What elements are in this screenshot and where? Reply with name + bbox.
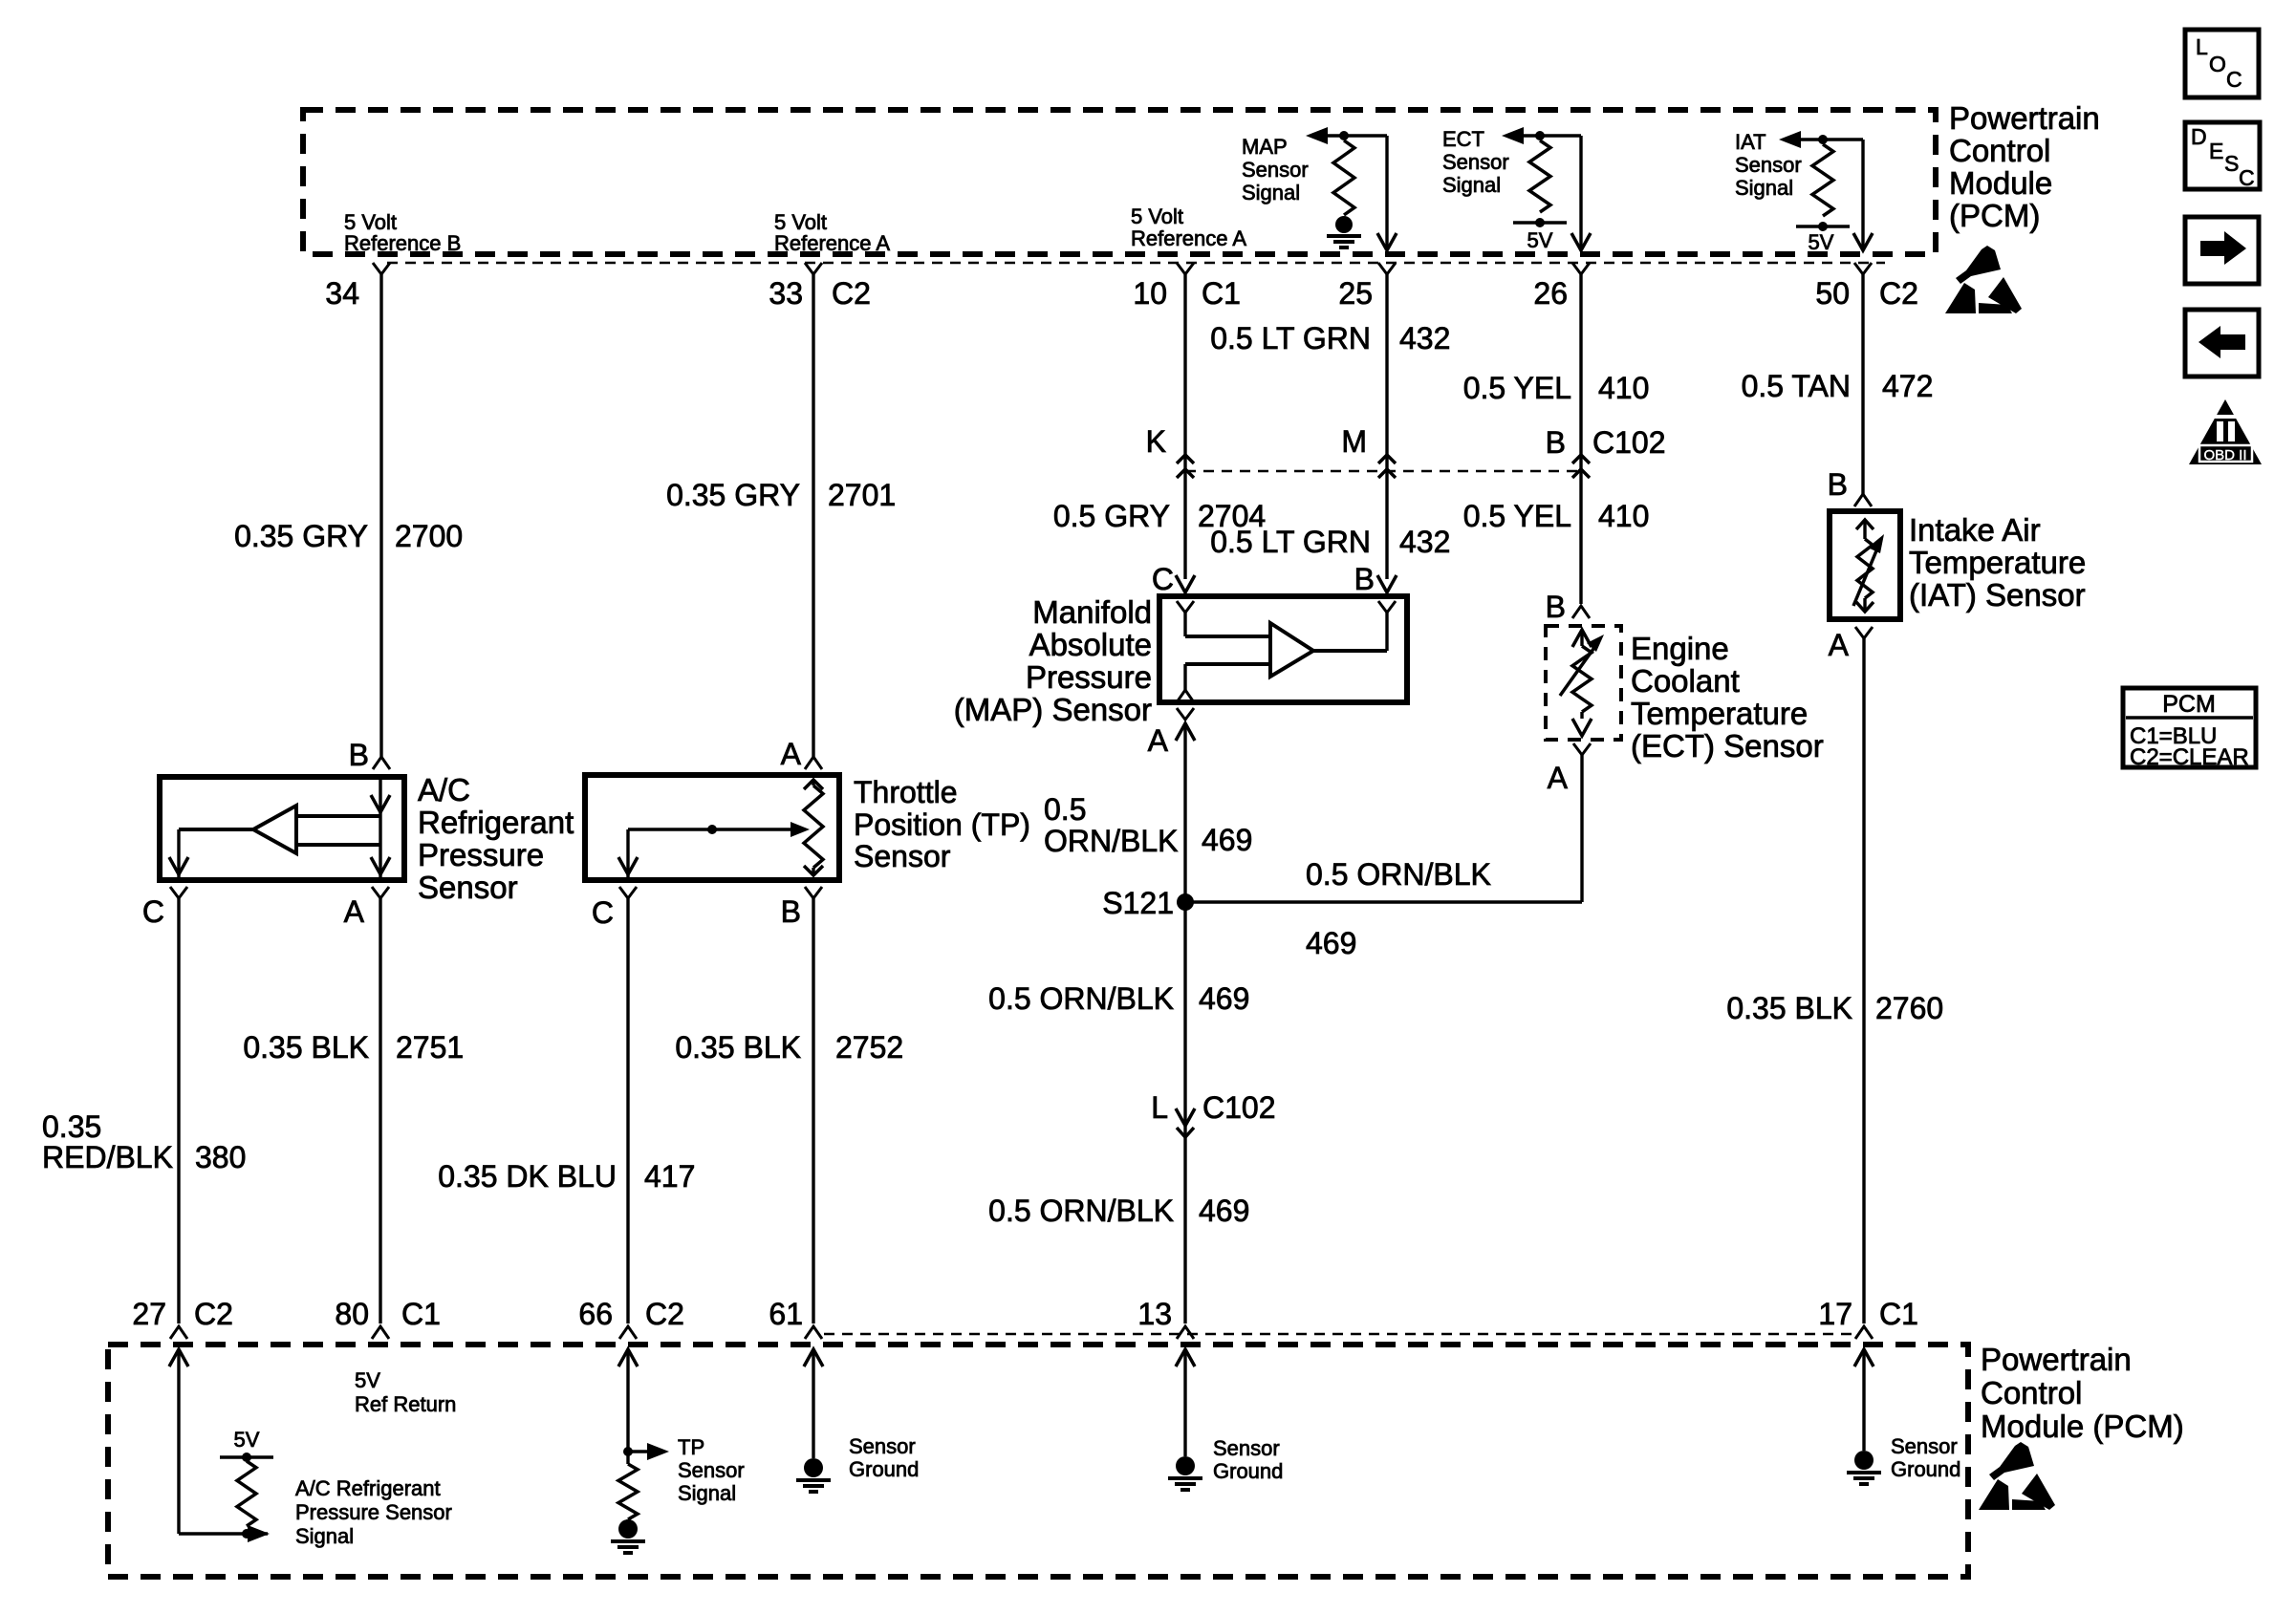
svg-text:Pressure: Pressure xyxy=(1026,659,1152,695)
svg-text:A/C Refrigerant: A/C Refrigerant xyxy=(295,1476,441,1500)
svg-text:5V: 5V xyxy=(355,1368,380,1392)
svg-text:66: 66 xyxy=(578,1297,613,1331)
svg-text:0.35 DK BLU: 0.35 DK BLU xyxy=(438,1159,617,1194)
svg-text:C: C xyxy=(142,894,164,929)
svg-text:C: C xyxy=(2226,67,2242,92)
svg-text:0.5 ORN/BLK: 0.5 ORN/BLK xyxy=(988,981,1174,1016)
svg-text:0.35 GRY: 0.35 GRY xyxy=(666,478,800,512)
svg-text:26: 26 xyxy=(1533,276,1568,311)
svg-text:0.35 BLK: 0.35 BLK xyxy=(243,1030,369,1065)
svg-text:0.5 ORN/BLK: 0.5 ORN/BLK xyxy=(988,1194,1174,1228)
svg-text:Intake Air: Intake Air xyxy=(1909,512,2041,548)
svg-text:2700: 2700 xyxy=(395,519,463,553)
svg-text:C: C xyxy=(592,895,614,930)
svg-text:432: 432 xyxy=(1399,525,1450,559)
svg-text:0.5 YEL: 0.5 YEL xyxy=(1463,371,1571,405)
svg-text:0.5 ORN/BLK: 0.5 ORN/BLK xyxy=(1306,857,1491,892)
svg-text:469: 469 xyxy=(1199,1194,1249,1228)
svg-text:MAP: MAP xyxy=(1242,135,1288,159)
svg-text:80: 80 xyxy=(335,1297,369,1331)
svg-text:IAT: IAT xyxy=(1735,130,1766,154)
svg-text:0.5 LT GRN: 0.5 LT GRN xyxy=(1210,321,1371,355)
svg-text:Signal: Signal xyxy=(295,1524,354,1548)
svg-text:Engine: Engine xyxy=(1631,631,1729,666)
svg-text:Coolant: Coolant xyxy=(1631,663,1740,699)
svg-text:Ground: Ground xyxy=(1213,1459,1283,1483)
svg-text:Reference B: Reference B xyxy=(344,231,461,255)
svg-text:2701: 2701 xyxy=(828,478,896,512)
svg-text:0.35 BLK: 0.35 BLK xyxy=(1726,991,1852,1025)
svg-text:Module: Module xyxy=(1949,165,2052,201)
svg-text:50: 50 xyxy=(1815,276,1850,311)
svg-text:A: A xyxy=(781,737,802,771)
svg-text:C102: C102 xyxy=(1592,425,1666,460)
svg-text:Control: Control xyxy=(1949,133,2050,168)
svg-text:Module (PCM): Module (PCM) xyxy=(1981,1409,2184,1444)
svg-text:Ground: Ground xyxy=(849,1457,919,1481)
svg-text:380: 380 xyxy=(195,1140,246,1174)
svg-text:Position (TP): Position (TP) xyxy=(854,807,1030,842)
svg-text:Reference A: Reference A xyxy=(1131,226,1246,250)
svg-text:Sensor: Sensor xyxy=(849,1434,916,1458)
svg-text:Temperature: Temperature xyxy=(1909,545,2086,580)
svg-text:Reference A: Reference A xyxy=(774,231,890,255)
svg-text:33: 33 xyxy=(769,276,803,311)
svg-text:Ref Return: Ref Return xyxy=(355,1392,456,1416)
svg-text:0.35: 0.35 xyxy=(42,1109,101,1144)
svg-text:C1: C1 xyxy=(401,1297,441,1331)
svg-text:Pressure: Pressure xyxy=(418,837,544,872)
svg-text:C: C xyxy=(2239,165,2255,190)
svg-text:Manifold: Manifold xyxy=(1032,594,1152,630)
svg-text:Signal: Signal xyxy=(1735,176,1793,200)
svg-text:B: B xyxy=(781,894,801,929)
svg-text:A: A xyxy=(1548,761,1569,795)
svg-text:5 Volt: 5 Volt xyxy=(1131,204,1183,228)
svg-text:5V: 5V xyxy=(1809,230,1834,254)
svg-text:13: 13 xyxy=(1137,1297,1172,1331)
svg-text:472: 472 xyxy=(1882,369,1933,403)
svg-text:17: 17 xyxy=(1818,1297,1852,1331)
svg-text:417: 417 xyxy=(644,1159,695,1194)
svg-text:B: B xyxy=(1546,425,1566,460)
svg-text:410: 410 xyxy=(1598,499,1649,533)
svg-text:C: C xyxy=(1152,562,1174,596)
svg-text:Sensor: Sensor xyxy=(1213,1436,1280,1460)
svg-text:25: 25 xyxy=(1338,276,1373,311)
svg-text:B: B xyxy=(349,738,369,772)
svg-text:C1: C1 xyxy=(1202,276,1241,311)
svg-text:Ground: Ground xyxy=(1891,1457,1960,1481)
svg-text:2751: 2751 xyxy=(396,1030,464,1065)
svg-text:C2: C2 xyxy=(1879,276,1918,311)
svg-text:0.35 GRY: 0.35 GRY xyxy=(234,519,368,553)
svg-text:A: A xyxy=(1148,723,1169,758)
svg-text:C1: C1 xyxy=(1879,1297,1918,1331)
svg-text:C102: C102 xyxy=(1202,1090,1276,1125)
svg-text:61: 61 xyxy=(769,1297,803,1331)
svg-text:(PCM): (PCM) xyxy=(1949,198,2040,233)
svg-text:27: 27 xyxy=(132,1297,166,1331)
svg-text:M: M xyxy=(1341,424,1367,459)
svg-text:RED/BLK: RED/BLK xyxy=(42,1140,173,1174)
svg-text:S121: S121 xyxy=(1102,886,1174,920)
svg-text:Pressure Sensor: Pressure Sensor xyxy=(295,1500,452,1524)
svg-text:S: S xyxy=(2224,151,2239,176)
svg-text:Signal: Signal xyxy=(1442,173,1501,197)
svg-text:C2: C2 xyxy=(832,276,871,311)
svg-text:L: L xyxy=(2196,34,2208,59)
svg-text:0.35 BLK: 0.35 BLK xyxy=(675,1030,801,1065)
svg-text:Sensor: Sensor xyxy=(678,1458,745,1482)
svg-text:B: B xyxy=(1828,467,1848,502)
svg-text:10: 10 xyxy=(1133,276,1167,311)
svg-text:469: 469 xyxy=(1306,926,1356,960)
svg-text:Control: Control xyxy=(1981,1375,2082,1410)
svg-text:TP: TP xyxy=(678,1435,704,1459)
svg-text:5V: 5V xyxy=(234,1428,260,1452)
svg-text:469: 469 xyxy=(1202,823,1252,857)
svg-text:Signal: Signal xyxy=(678,1481,736,1505)
svg-text:Throttle: Throttle xyxy=(854,775,957,809)
svg-text:(IAT) Sensor: (IAT) Sensor xyxy=(1909,577,2086,613)
svg-text:Powertrain: Powertrain xyxy=(1949,100,2100,136)
svg-text:0.5 TAN: 0.5 TAN xyxy=(1742,369,1851,403)
svg-text:Refrigerant: Refrigerant xyxy=(418,805,574,840)
svg-text:Sensor: Sensor xyxy=(1735,153,1802,177)
svg-text:Sensor: Sensor xyxy=(1891,1434,1958,1458)
svg-text:B: B xyxy=(1354,562,1375,596)
svg-text:OBD II: OBD II xyxy=(2203,447,2246,463)
svg-text:D: D xyxy=(2191,124,2207,149)
svg-text:0.5 YEL: 0.5 YEL xyxy=(1463,499,1571,533)
svg-text:0.5 GRY: 0.5 GRY xyxy=(1053,499,1170,533)
svg-text:410: 410 xyxy=(1598,371,1649,405)
svg-text:L: L xyxy=(1151,1090,1168,1125)
svg-text:A: A xyxy=(344,894,365,929)
svg-text:5V: 5V xyxy=(1527,228,1553,252)
svg-text:C2=CLEAR: C2=CLEAR xyxy=(2130,744,2249,770)
svg-text:B: B xyxy=(1546,590,1566,624)
svg-text:A/C: A/C xyxy=(418,772,470,807)
svg-text:PCM: PCM xyxy=(2162,691,2216,718)
svg-text:2752: 2752 xyxy=(835,1030,903,1065)
svg-text:Sensor: Sensor xyxy=(1242,158,1309,182)
svg-text:E: E xyxy=(2209,139,2223,163)
svg-text:0.5 LT GRN: 0.5 LT GRN xyxy=(1210,525,1371,559)
svg-text:Sensor: Sensor xyxy=(854,839,951,873)
svg-text:432: 432 xyxy=(1399,321,1450,355)
svg-text:Signal: Signal xyxy=(1242,181,1300,204)
svg-text:(MAP) Sensor: (MAP) Sensor xyxy=(954,692,1152,727)
svg-text:2760: 2760 xyxy=(1875,991,1943,1025)
svg-text:K: K xyxy=(1146,424,1166,459)
svg-text:A: A xyxy=(1829,628,1850,662)
svg-text:Sensor: Sensor xyxy=(1442,150,1509,174)
svg-text:469: 469 xyxy=(1199,981,1249,1016)
svg-text:34: 34 xyxy=(325,276,359,311)
svg-text:Absolute: Absolute xyxy=(1029,627,1152,662)
svg-text:0.5: 0.5 xyxy=(1044,792,1086,827)
svg-text:(ECT) Sensor: (ECT) Sensor xyxy=(1631,728,1824,764)
svg-text:ECT: ECT xyxy=(1442,127,1484,151)
svg-text:Temperature: Temperature xyxy=(1631,696,1808,731)
svg-text:Powertrain: Powertrain xyxy=(1981,1342,2132,1377)
svg-text:O: O xyxy=(2209,52,2226,76)
svg-text:Sensor: Sensor xyxy=(418,870,518,905)
svg-text:ORN/BLK: ORN/BLK xyxy=(1044,824,1178,858)
svg-text:C2: C2 xyxy=(645,1297,684,1331)
svg-text:C2: C2 xyxy=(194,1297,233,1331)
